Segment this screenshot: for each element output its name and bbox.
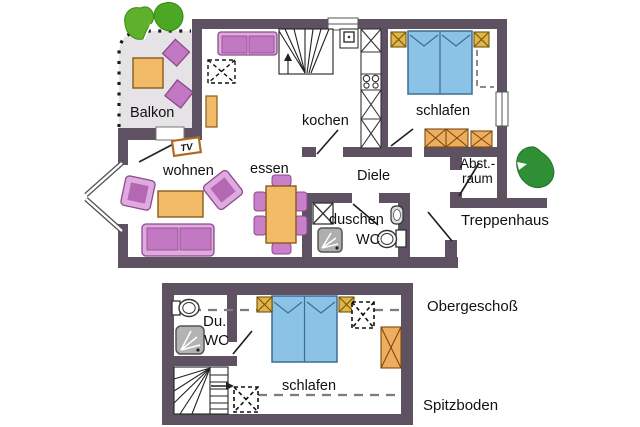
stove-burner — [373, 83, 378, 88]
dining-table — [266, 186, 296, 243]
label-balcony: Balkon — [130, 105, 174, 121]
toilet — [172, 300, 199, 317]
balcony-table — [133, 58, 163, 88]
stair-outline — [279, 29, 333, 74]
stove-burner — [364, 83, 369, 88]
tree-icon — [154, 2, 183, 30]
armchair — [120, 175, 156, 211]
dining-chair — [254, 216, 266, 235]
sink-drain — [348, 36, 351, 39]
shower-tray — [318, 228, 342, 252]
kitchen-cabinet-row — [361, 29, 381, 148]
attic-bathroom-fixtures — [172, 300, 204, 355]
wall — [118, 257, 458, 268]
label-bedroom-upper: schlafen — [416, 103, 470, 119]
label-bedroom-attic: schlafen — [282, 378, 336, 394]
sofa-cushion — [222, 36, 247, 53]
shower-drain — [335, 246, 338, 249]
staircase-upper — [279, 29, 333, 74]
shower-drain — [196, 348, 199, 351]
kitchen-cabinet — [361, 29, 381, 148]
sofa-cushion — [249, 36, 274, 53]
dining-chair — [272, 243, 291, 254]
label-stairwell: Treppenhaus — [461, 212, 549, 229]
label-floor-upper: Obergeschoß — [427, 298, 518, 315]
wardrobes — [425, 129, 492, 147]
wall — [118, 128, 128, 165]
kitchen-fixtures — [340, 29, 381, 148]
label-wc-upper: WC — [356, 232, 380, 248]
upper-bedroom-furniture — [391, 31, 494, 147]
label-kitchen: kochen — [302, 113, 349, 129]
floor-plan-page: TV — [0, 0, 640, 427]
bay-glass-inner — [86, 199, 122, 231]
dining-furniture — [254, 175, 307, 254]
shelf — [206, 96, 217, 127]
optional-furniture-box — [208, 60, 235, 83]
tv: TV — [172, 137, 201, 156]
label-dining: essen — [250, 161, 289, 177]
shower-tray — [176, 326, 204, 354]
coffee-table — [158, 191, 203, 217]
wall — [445, 240, 457, 268]
door-leaf-kitchen — [317, 130, 338, 154]
dining-chair — [295, 192, 307, 211]
label-shower-room: duschen — [329, 212, 384, 228]
label-floor-attic: Spitzboden — [423, 397, 498, 414]
dining-chair — [295, 216, 307, 235]
wall — [174, 356, 237, 366]
sofa-cushion — [180, 228, 211, 250]
sofa-cushion — [147, 228, 178, 250]
wall — [302, 147, 316, 157]
dining-chair — [254, 192, 266, 211]
label-attic-wc: WC — [204, 332, 229, 349]
wardrobes — [381, 327, 401, 368]
balcony-door — [156, 127, 184, 140]
bay-window — [86, 163, 122, 231]
tv-label: TV — [180, 142, 194, 155]
label-storage-line2: raum — [462, 171, 493, 186]
wall — [450, 198, 547, 208]
floor-plan-svg: TV — [0, 0, 640, 427]
label-storage-line1: Abst.- — [460, 156, 495, 171]
toilet-tank — [396, 230, 406, 247]
bay-glass-inner — [86, 163, 122, 195]
stove-burner — [372, 75, 378, 81]
stove-burner — [363, 75, 369, 81]
wall — [310, 193, 352, 203]
wall — [162, 283, 413, 295]
wall-basin — [391, 206, 403, 224]
arrow-head-icon — [226, 382, 234, 390]
label-living: wohnen — [162, 163, 214, 179]
toilet — [378, 230, 407, 248]
wall — [401, 283, 413, 425]
label-attic-du: Du. — [203, 313, 226, 330]
label-hall: Diele — [357, 168, 390, 184]
wall — [192, 19, 202, 140]
wall — [162, 414, 413, 425]
door-leaf-entry — [428, 212, 452, 241]
door-leaf-bedroom — [391, 129, 413, 146]
dashed-clearance-line — [477, 50, 494, 87]
staircase-attic — [174, 367, 234, 414]
